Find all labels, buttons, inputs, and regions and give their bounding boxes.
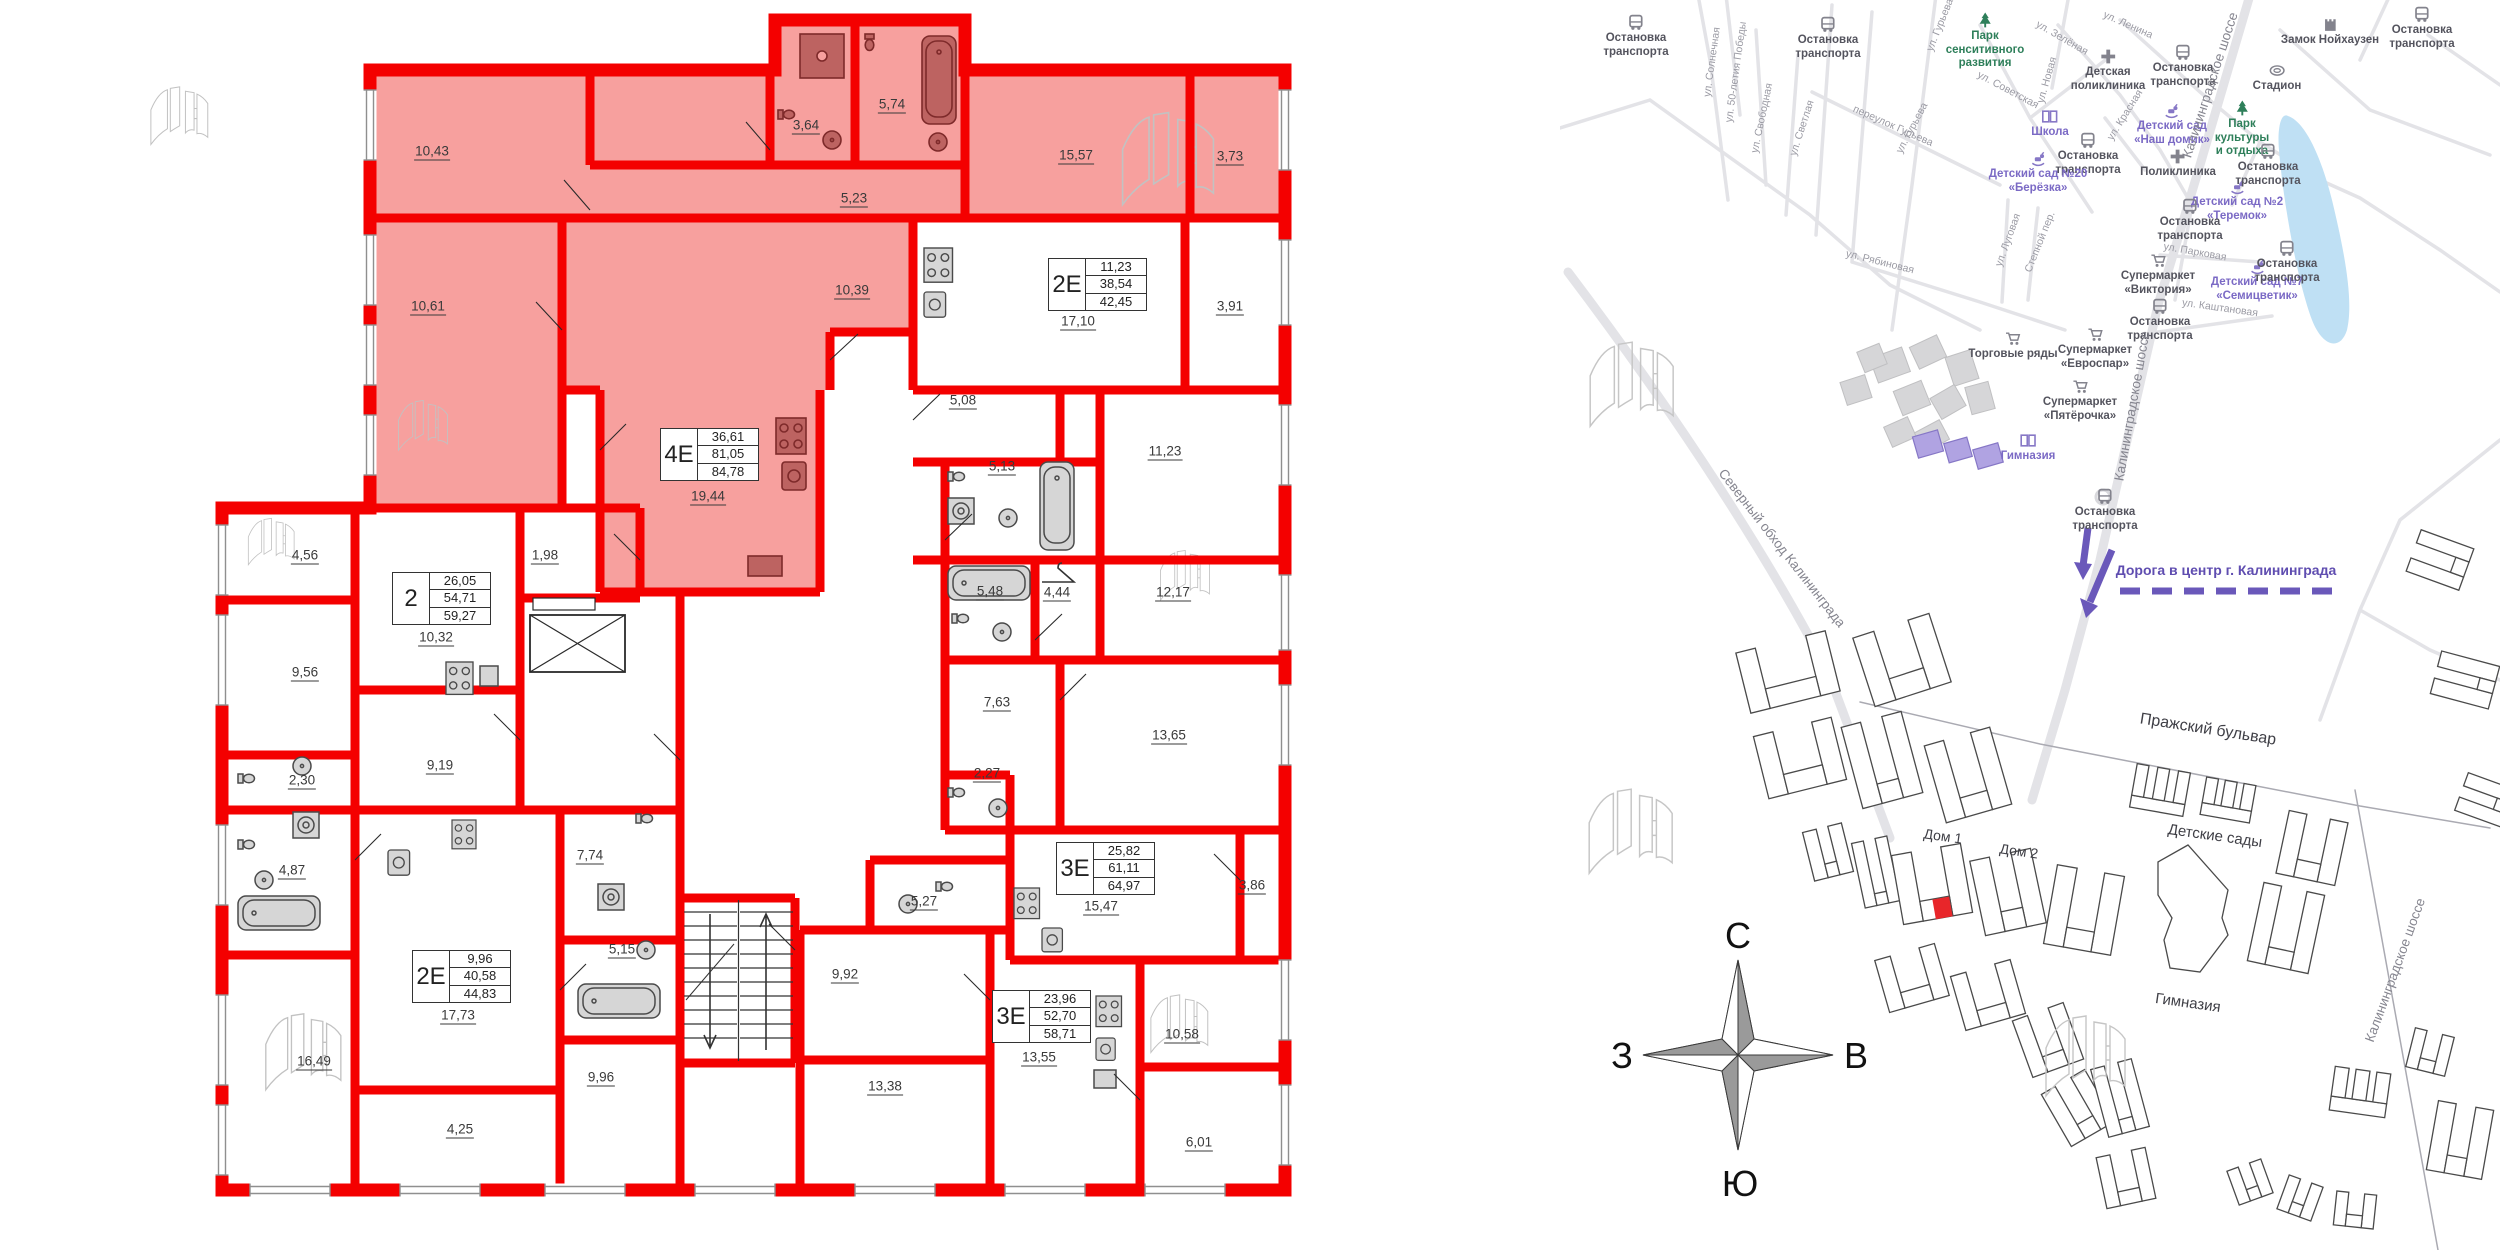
listing-page: 10,433,645,745,2315,573,7310,6110,3919,4… — [0, 0, 2500, 1250]
floor-plan-drawing — [0, 0, 1320, 1250]
floor-plan[interactable]: 10,433,645,745,2315,573,7310,6110,3919,4… — [0, 0, 1320, 1250]
current-building-marker[interactable] — [1932, 897, 1952, 920]
compass-south-label: Ю — [1722, 1163, 1758, 1204]
gymnasium-buildings — [1912, 430, 2003, 469]
compass-east-label: В — [1844, 1035, 1868, 1076]
roundabout — [2096, 490, 2110, 504]
stairs — [684, 900, 793, 1061]
gray-buildings — [1840, 335, 1995, 453]
watermark-logo — [1589, 342, 2125, 1096]
compass-north-label: С — [1725, 915, 1751, 956]
compass-west-label: З — [1611, 1035, 1633, 1076]
compass-icon — [1643, 960, 1833, 1150]
route-label: Дорога в центр г. Калининграда — [2116, 562, 2337, 578]
estate-buildings — [1736, 530, 2500, 1229]
location-map[interactable]: С Ю З В ОстановкатранспортаОстановкатран… — [1560, 0, 2500, 1250]
pond — [2278, 115, 2349, 343]
hanger-icon — [1042, 563, 1074, 582]
map-drawing: С Ю З В — [1560, 0, 2500, 1250]
elevator — [530, 598, 625, 672]
